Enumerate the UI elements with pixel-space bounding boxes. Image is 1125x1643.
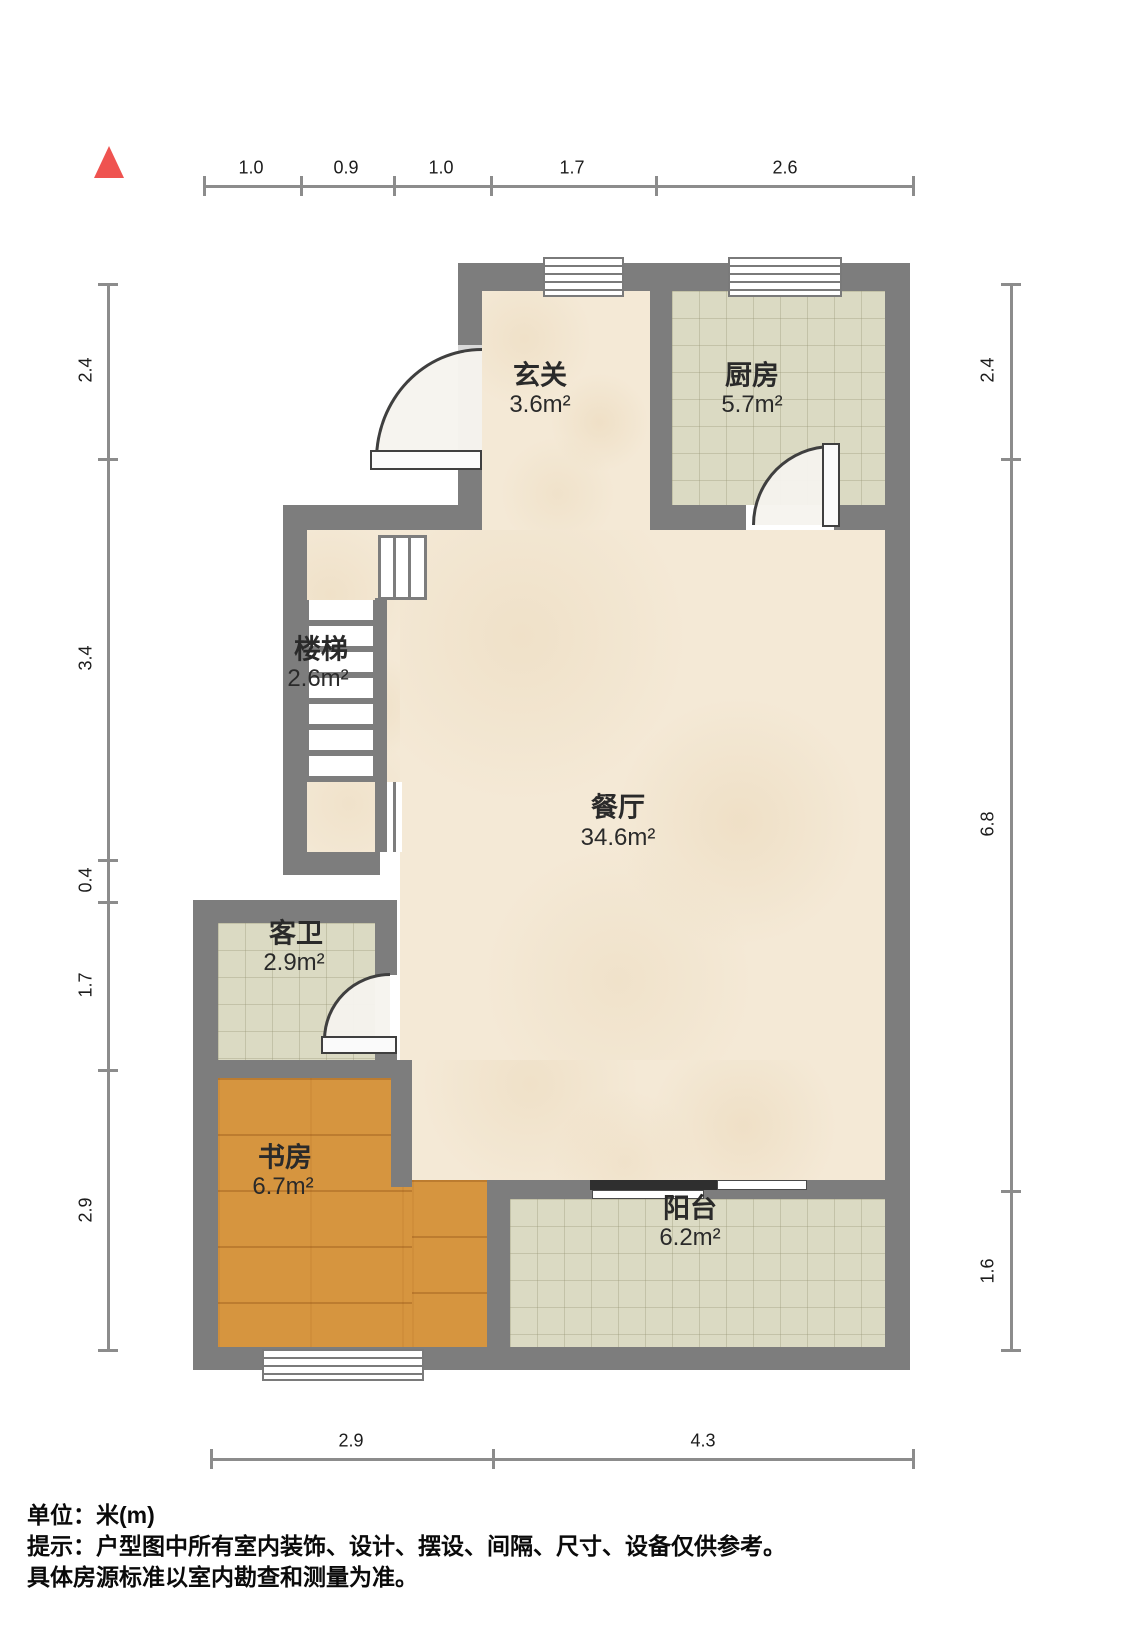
wall-right (885, 263, 910, 1370)
wall-stair-top (283, 505, 482, 530)
floor-plan: 玄关 3.6m² 厨房 5.7m² 楼梯 2.6m² 餐厅 34.6m² 客卫 … (0, 0, 1125, 1643)
dim-right-1: 2.4 (978, 357, 999, 382)
bath-door-leaf (321, 1036, 397, 1054)
entry-door-leaf (370, 450, 482, 470)
dim-top-4: 1.7 (559, 158, 584, 179)
dim-left-1: 2.4 (76, 357, 97, 382)
study-floor (218, 1078, 412, 1347)
room-label-kitchen: 厨房 (725, 354, 779, 393)
room-label-study: 书房 (258, 1136, 312, 1175)
room-label-dining: 餐厅 (591, 786, 645, 825)
balcony-sliding-door-panel-right (717, 1180, 807, 1190)
dining-floor-lower (412, 1060, 885, 1180)
room-area-kitchen: 5.7m² (721, 391, 782, 419)
wall-stair-bottom (283, 852, 380, 875)
stair-rail (375, 598, 387, 852)
room-label-entry: 玄关 (513, 354, 567, 393)
dim-left-5: 2.9 (76, 1197, 97, 1222)
study-window (262, 1349, 424, 1381)
room-label-stairs: 楼梯 (294, 628, 348, 667)
wall-study-top (193, 1060, 412, 1078)
dim-top-2: 0.9 (333, 158, 358, 179)
footer-unit-line: 单位：米(m) (27, 1496, 155, 1530)
dim-left-3: 0.4 (76, 867, 97, 892)
dim-left-4: 1.7 (76, 972, 97, 997)
dimension-line-right (1010, 283, 1013, 1352)
room-area-dining: 34.6m² (581, 824, 656, 852)
dimension-line-bottom (210, 1458, 915, 1461)
wall-west (193, 900, 218, 1370)
entry-door-arc (375, 348, 482, 460)
wall-top (458, 263, 910, 291)
room-label-balcony: 阳台 (663, 1187, 717, 1226)
room-area-study: 6.7m² (252, 1173, 313, 1201)
dim-bottom-1: 2.9 (338, 1431, 363, 1452)
wall-bath-east-upper (375, 923, 397, 975)
wall-kitchen-west (650, 291, 672, 530)
dim-bottom-2: 4.3 (690, 1431, 715, 1452)
stair-entrance-opening (387, 782, 402, 852)
dimension-line-left (107, 283, 110, 1352)
dim-top-3: 1.0 (428, 158, 453, 179)
kitchen-window (728, 257, 842, 297)
north-arrow-icon (94, 146, 124, 178)
room-label-guest-bath: 客卫 (269, 912, 323, 951)
room-area-balcony: 6.2m² (659, 1224, 720, 1252)
kitchen-door-leaf (822, 443, 840, 527)
room-area-entry: 3.6m² (509, 391, 570, 419)
dim-right-2: 6.8 (978, 811, 999, 836)
dim-top-5: 2.6 (772, 158, 797, 179)
room-area-guest-bath: 2.9m² (263, 949, 324, 977)
stair-upper-flight (378, 535, 427, 600)
dimension-line-top (203, 185, 915, 188)
room-area-stairs: 2.6m² (287, 665, 348, 693)
dim-top-1: 1.0 (238, 158, 263, 179)
study-floor-extension (412, 1180, 487, 1347)
dim-left-2: 3.4 (76, 645, 97, 670)
entry-window (543, 257, 624, 297)
footer-tip-line2: 具体房源标准以室内勘查和测量为准。 (27, 1558, 418, 1592)
footer-tip-line1: 提示：户型图中所有室内装饰、设计、摆设、间隔、尺寸、设备仅供参考。 (27, 1527, 786, 1561)
wall-balcony-west (487, 1180, 510, 1347)
dim-right-3: 1.6 (978, 1258, 999, 1283)
wall-study-dining-divider (391, 1060, 412, 1187)
